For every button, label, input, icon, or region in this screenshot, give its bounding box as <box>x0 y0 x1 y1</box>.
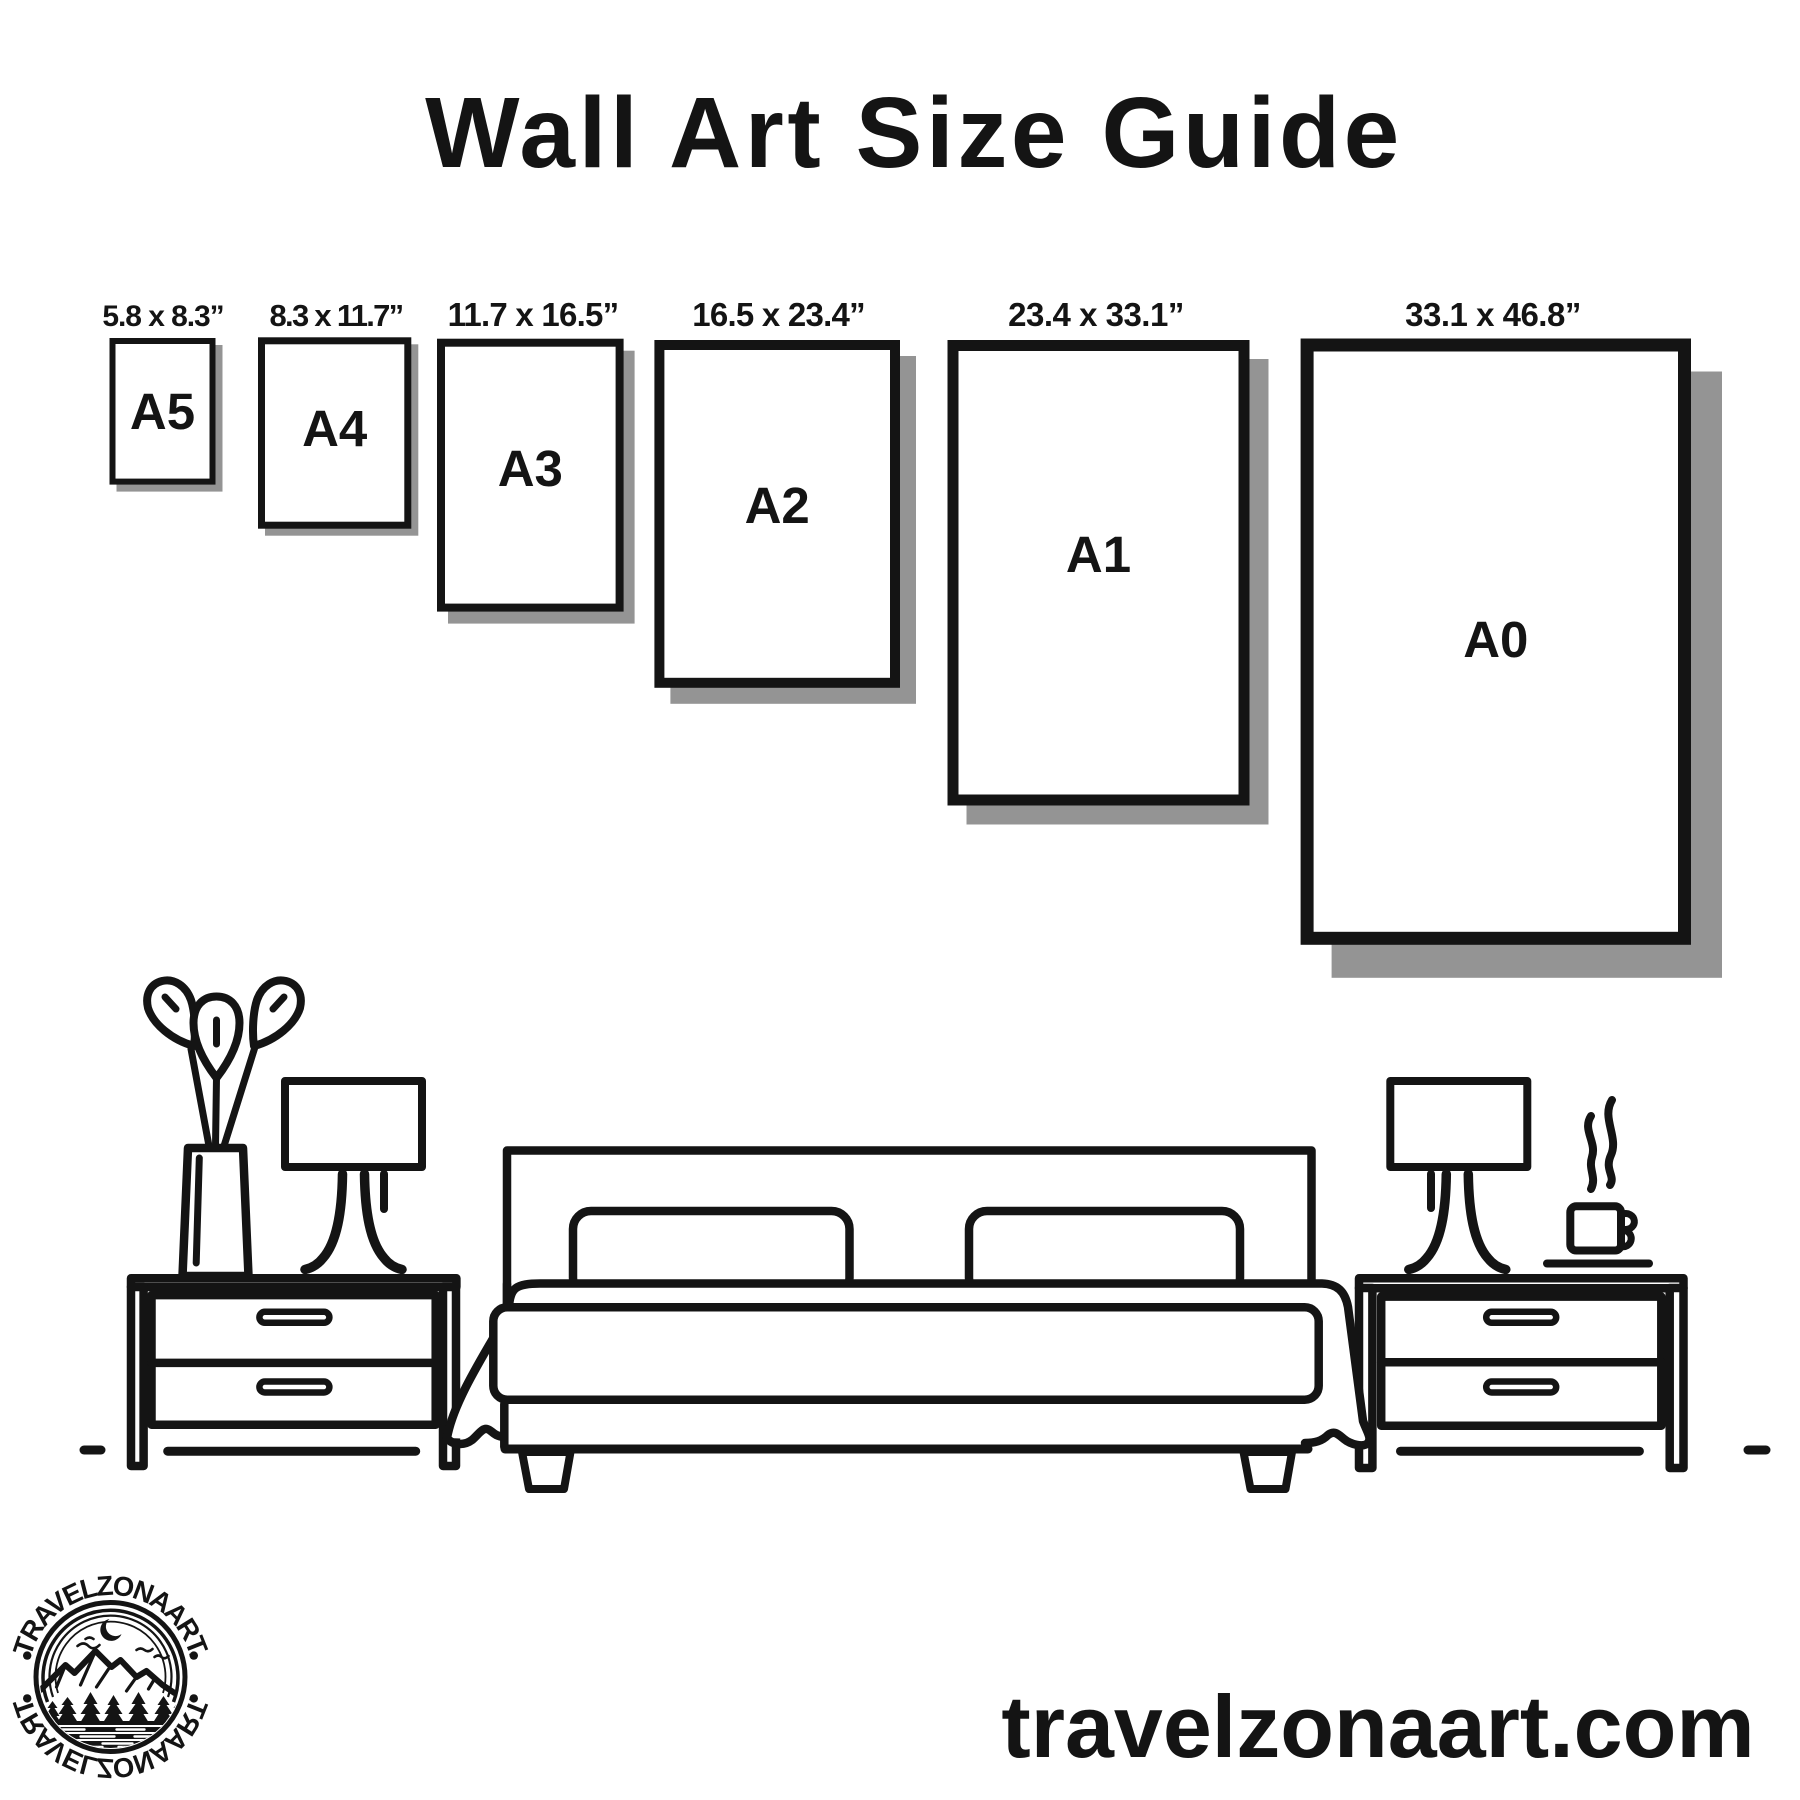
svg-text:11.7 x 16.5”: 11.7 x 16.5” <box>448 296 619 333</box>
svg-text:A1: A1 <box>1066 526 1131 583</box>
svg-text:16.5 x 23.4”: 16.5 x 23.4” <box>692 296 865 333</box>
svg-text:A5: A5 <box>130 383 195 440</box>
svg-text:Wall Art Size Guide: Wall Art Size Guide <box>425 77 1403 189</box>
svg-text:23.4 x 33.1”: 23.4 x 33.1” <box>1008 296 1184 333</box>
svg-text:5.8 x 8.3”: 5.8 x 8.3” <box>102 300 223 333</box>
svg-text:A4: A4 <box>302 400 368 457</box>
svg-text:A3: A3 <box>498 440 563 497</box>
svg-text:A0: A0 <box>1463 611 1528 668</box>
svg-text:33.1 x 46.8”: 33.1 x 46.8” <box>1405 296 1581 333</box>
svg-text:8.3 x 11.7”: 8.3 x 11.7” <box>270 298 403 333</box>
svg-text:A2: A2 <box>745 477 810 534</box>
svg-text:travelzonaart.com: travelzonaart.com <box>1001 1677 1754 1776</box>
